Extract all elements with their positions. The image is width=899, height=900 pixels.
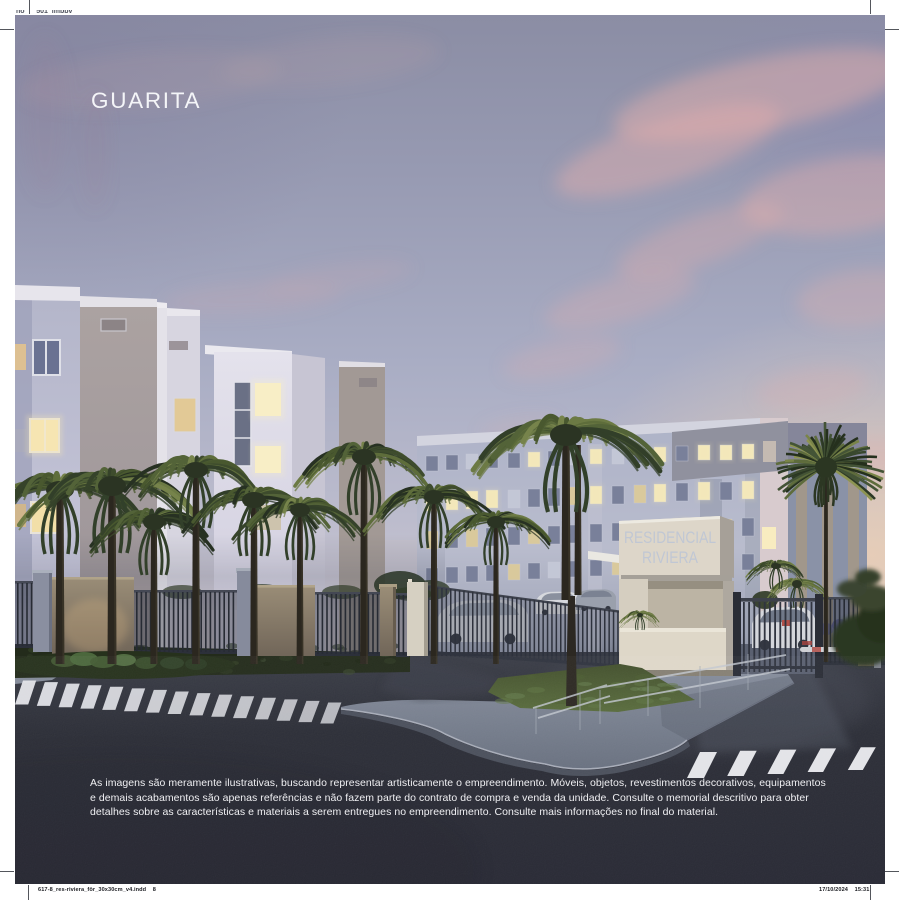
- svg-text:RESIDENCIAL: RESIDENCIAL: [624, 528, 716, 547]
- svg-text:RIVIERA: RIVIERA: [642, 548, 699, 567]
